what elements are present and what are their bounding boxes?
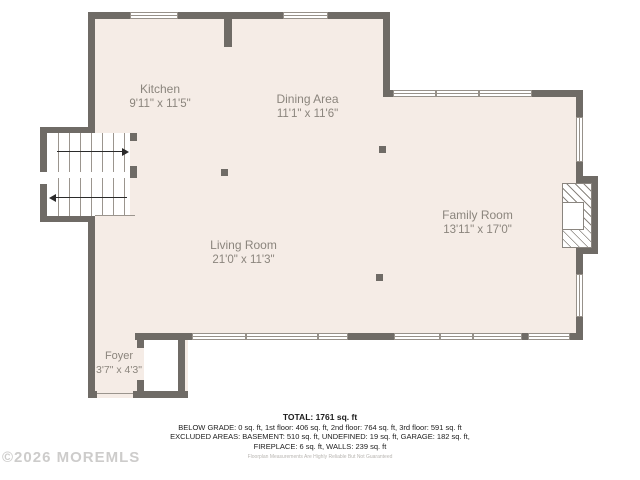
post-marker: [221, 169, 228, 176]
room-label-dining: Dining Area 11'1" x 11'6": [245, 92, 370, 121]
stair-down-arrow-line: [56, 197, 127, 198]
window: [393, 90, 436, 97]
wall-entry-right: [178, 340, 185, 391]
wall-entry-divider-bottom: [137, 380, 144, 391]
wall-stair-stub-mid: [130, 166, 137, 178]
window: [394, 333, 440, 340]
stair-up-arrow-line: [57, 151, 122, 152]
room-dimensions: 21'0" x 11'3": [181, 253, 306, 267]
wall-foyer-bottom-b: [133, 391, 188, 398]
wall-kitchen-dining-stub: [224, 19, 232, 47]
room-label-kitchen: Kitchen 9'11" x 11'5": [100, 82, 220, 111]
wall-stair-bottom: [40, 216, 95, 222]
room-label-family: Family Room 13'11" x 17'0": [415, 208, 540, 237]
window: [576, 117, 583, 162]
stair-tread: [69, 133, 70, 172]
wall-bottom-b: [348, 333, 394, 340]
window: [318, 333, 348, 340]
window: [479, 90, 532, 97]
stair-tread: [102, 133, 103, 172]
stair-open-edge: [95, 215, 135, 216]
stair-tread: [91, 133, 92, 172]
post-marker: [379, 146, 386, 153]
wall-foyer-bottom-a: [88, 391, 97, 398]
wall-bottom-d: [570, 333, 583, 340]
room-dimensions: 3'7" x 4'3": [80, 364, 158, 377]
room-name: Dining Area: [245, 92, 370, 107]
staircase: [47, 133, 130, 216]
wall-right-1: [576, 97, 583, 117]
room-name: Family Room: [415, 208, 540, 223]
wall-entry-divider-top: [137, 340, 144, 348]
excluded-areas: EXCLUDED AREAS: BASEMENT: 510 sq. ft, UN…: [0, 432, 640, 441]
stair-down-arrow-icon: [49, 194, 56, 202]
wall-family-top-a: [383, 90, 393, 97]
room-dimensions: 13'11" x 17'0": [415, 223, 540, 237]
wall-stair-stub-top: [130, 133, 137, 141]
room-label-foyer: Foyer 3'7" x 4'3": [80, 350, 158, 377]
wall-left-upper: [88, 12, 95, 133]
window: [473, 333, 522, 340]
total-area: TOTAL: 1761 sq. ft: [0, 412, 640, 422]
window: [192, 333, 246, 340]
wall-right-3: [576, 254, 583, 274]
wall-top-b: [178, 12, 283, 19]
window: [246, 333, 318, 340]
stair-tread: [58, 133, 59, 172]
room-dimensions: 9'11" x 11'5": [100, 97, 220, 111]
front-door-threshold: [97, 393, 133, 394]
wall-stair-left-a: [40, 127, 47, 172]
stair-tread: [113, 133, 114, 172]
stair-up-arrow-icon: [122, 148, 129, 156]
post-marker: [376, 274, 383, 281]
window: [130, 12, 178, 19]
window: [440, 333, 473, 340]
window: [283, 12, 328, 19]
room-name: Living Room: [181, 238, 306, 253]
floor-plan: Kitchen 9'11" x 11'5" Dining Area 11'1" …: [0, 0, 640, 480]
wall-family-top-b: [532, 90, 583, 97]
wall-dining-right: [383, 12, 390, 97]
wall-bottom-a: [135, 333, 192, 340]
window: [576, 274, 583, 317]
room-dimensions: 11'1" x 11'6": [245, 107, 370, 121]
window: [528, 333, 570, 340]
room-name: Kitchen: [100, 82, 220, 97]
fireplace-firebox: [562, 202, 584, 230]
floor-areas: BELOW GRADE: 0 sq. ft, 1st floor: 406 sq…: [0, 423, 640, 432]
mls-watermark: ©2026 MOREMLS: [2, 449, 140, 466]
room-name: Foyer: [80, 350, 158, 364]
room-label-living: Living Room 21'0" x 11'3": [181, 238, 306, 267]
window: [436, 90, 479, 97]
wall-top-c: [328, 12, 390, 19]
stair-tread: [80, 133, 81, 172]
